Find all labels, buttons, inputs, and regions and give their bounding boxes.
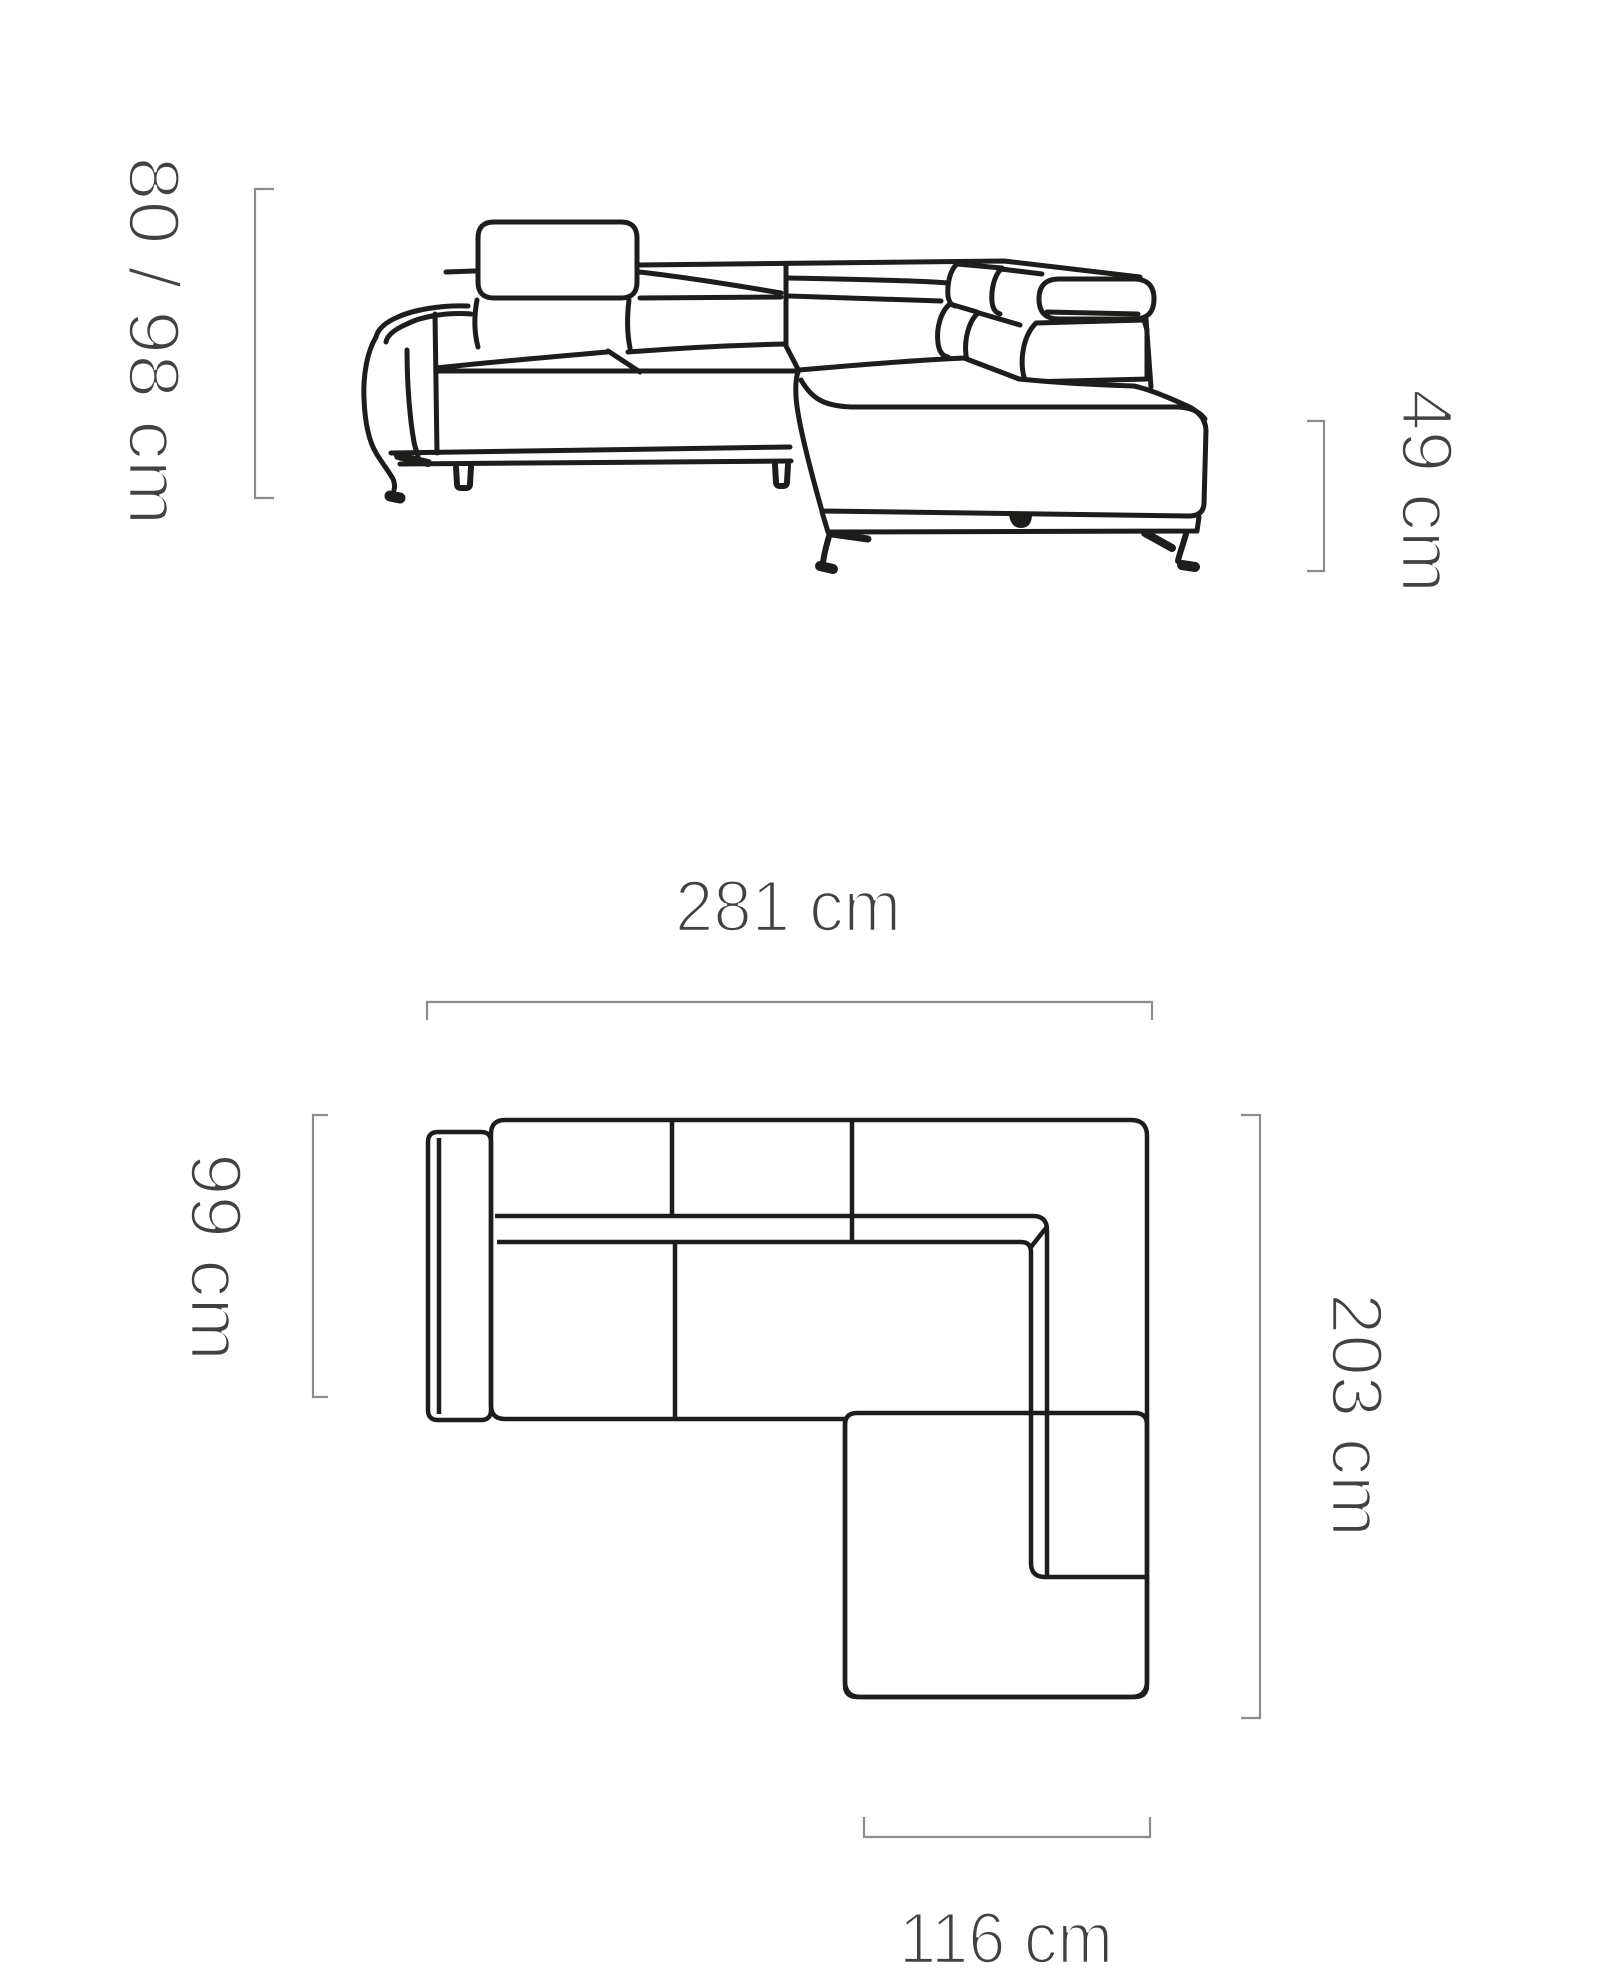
svg-text:281 cm: 281 cm <box>675 867 901 947</box>
svg-text:116 cm: 116 cm <box>899 1899 1113 1975</box>
svg-text:99 cm: 99 cm <box>175 1153 255 1361</box>
svg-text:80 / 98 cm: 80 / 98 cm <box>113 157 193 526</box>
svg-text:203 cm: 203 cm <box>1316 1293 1396 1537</box>
svg-text:49 cm: 49 cm <box>1386 389 1466 593</box>
